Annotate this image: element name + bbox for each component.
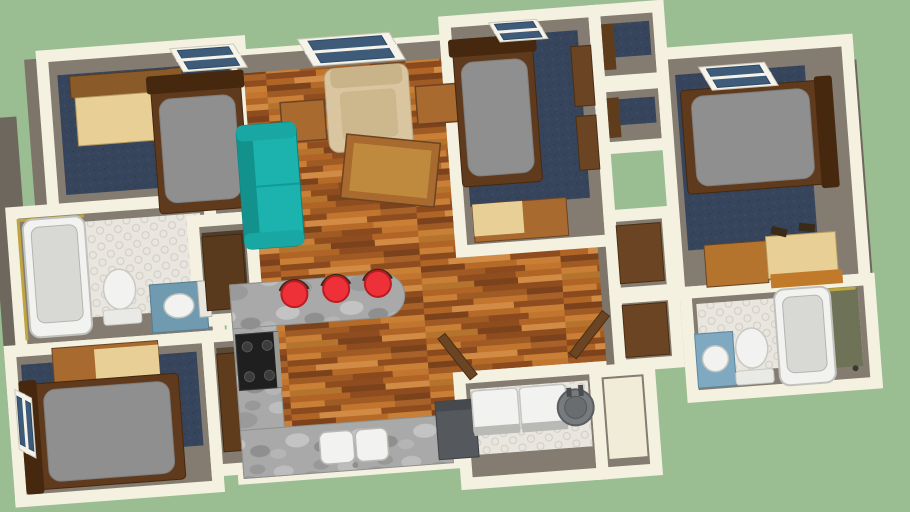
bed-top-left-mattress xyxy=(158,94,242,203)
coffee-table-top xyxy=(349,143,431,199)
bar-stool-seat xyxy=(322,275,350,303)
closet-door xyxy=(571,45,595,106)
burner xyxy=(262,340,273,351)
burner xyxy=(264,370,275,381)
floor-plan-render xyxy=(0,0,910,512)
burner xyxy=(242,341,253,352)
end-table-right xyxy=(415,83,460,124)
armchair-seat xyxy=(339,88,398,140)
bed-right-mattress xyxy=(691,88,815,187)
heater-pipe xyxy=(566,388,572,397)
sink-basin xyxy=(355,428,389,462)
burner xyxy=(244,371,255,382)
shoe xyxy=(798,223,815,233)
utility-extension-floor xyxy=(604,376,648,459)
closet-door xyxy=(576,115,600,170)
heater-pipe xyxy=(578,385,584,396)
toilet-tank xyxy=(735,368,774,385)
floor-plan-3d-viewport[interactable] xyxy=(0,0,910,512)
closet-door xyxy=(616,223,664,284)
desk-top xyxy=(472,201,524,237)
closet-door xyxy=(622,302,670,357)
bed-middle-mattress xyxy=(461,58,535,177)
bar-stool-seat xyxy=(280,280,308,308)
bathtub-inner xyxy=(782,295,828,374)
toilet-tank xyxy=(103,308,142,326)
bed-bottom-left-mattress xyxy=(43,381,176,482)
bar-stool-seat xyxy=(364,270,392,298)
bathtub-inner xyxy=(31,224,84,323)
sink-basin xyxy=(319,430,355,464)
desk xyxy=(704,241,769,288)
